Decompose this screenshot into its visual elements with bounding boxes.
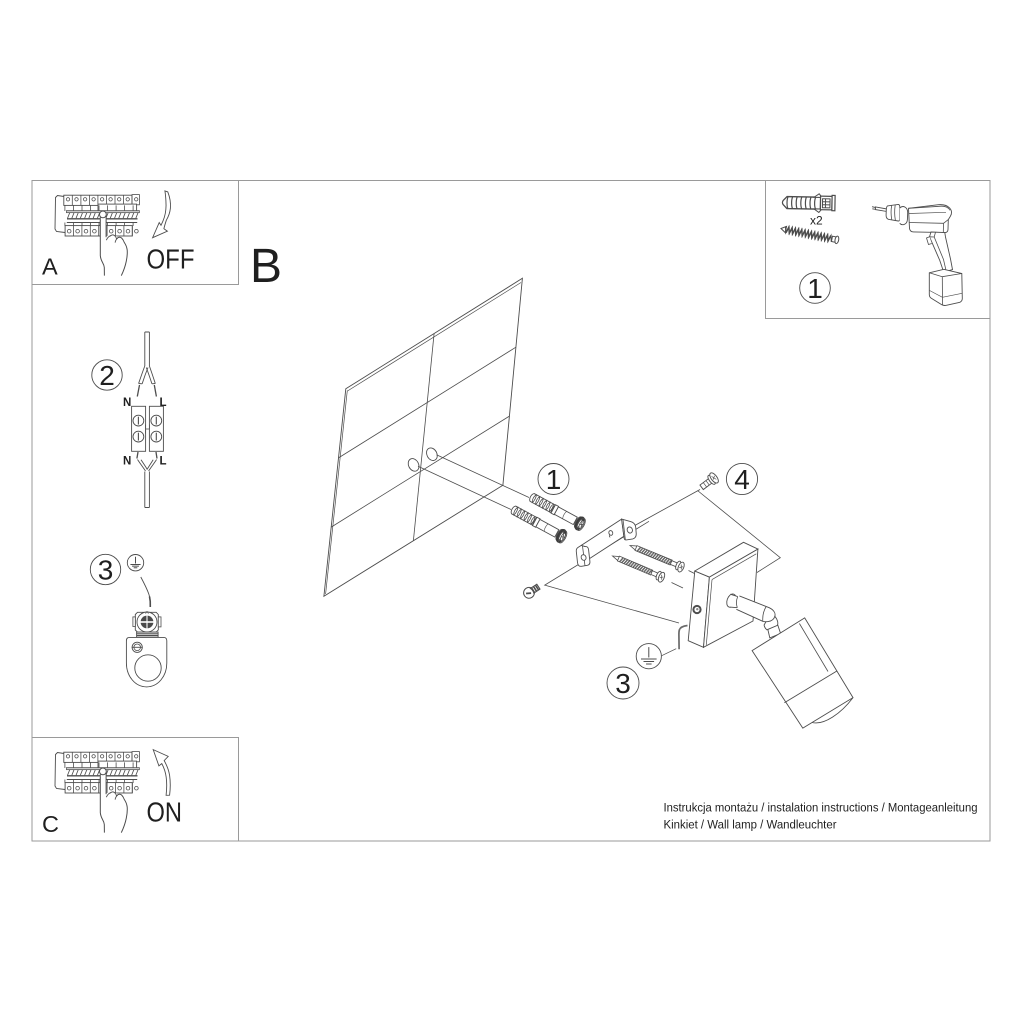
svg-text:N: N (123, 456, 131, 468)
svg-text:C: C (42, 811, 59, 837)
svg-text:4: 4 (734, 464, 750, 495)
svg-text:2: 2 (99, 360, 115, 391)
svg-text:N: N (123, 397, 131, 409)
svg-text:Kinkiet / Wall lamp / Wandleuc: Kinkiet / Wall lamp / Wandleuchter (664, 817, 837, 831)
svg-text:A: A (42, 254, 58, 280)
svg-text:L: L (160, 456, 167, 468)
svg-text:x2: x2 (810, 214, 823, 228)
svg-text:3: 3 (615, 668, 631, 699)
svg-text:OFF: OFF (147, 244, 195, 275)
svg-text:3: 3 (98, 555, 114, 586)
svg-text:1: 1 (807, 273, 823, 304)
svg-text:B: B (250, 240, 282, 293)
svg-text:Instrukcja montażu / instalati: Instrukcja montażu / instalation instruc… (664, 801, 978, 815)
svg-text:ON: ON (147, 797, 183, 828)
svg-text:1: 1 (546, 464, 562, 495)
